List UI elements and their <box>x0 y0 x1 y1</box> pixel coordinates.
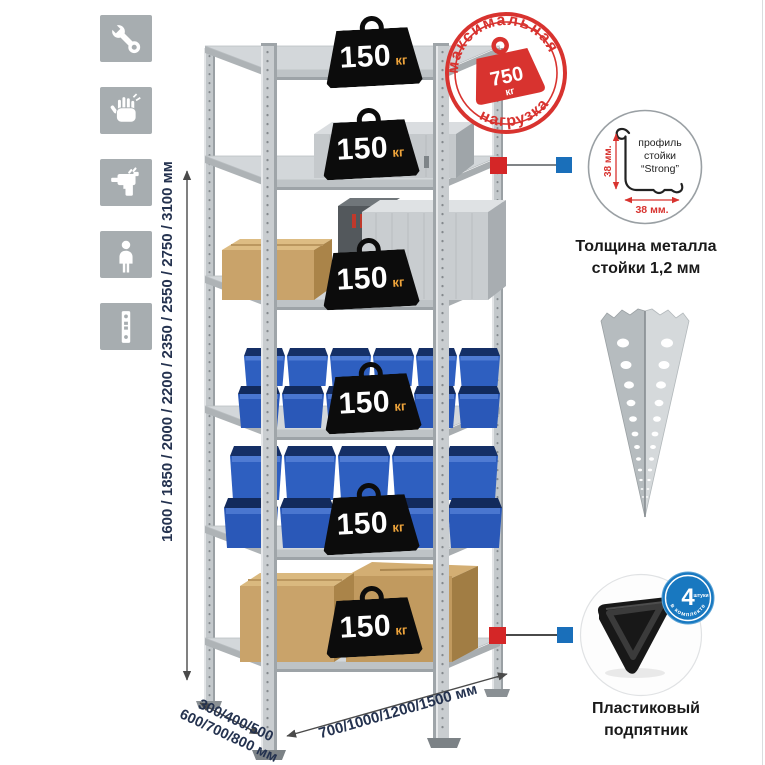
shelf2-load-badge: 150кг <box>320 106 420 181</box>
product-infographic: 150кг 150кг 150кг 150кг 150кг 150кг макс… <box>0 0 765 765</box>
load-unit: кг <box>395 622 408 638</box>
height-dimension-label: 1600 / 1850 / 2000 / 2200 / 2350 / 2550 … <box>159 202 181 542</box>
gloves-icon <box>100 87 152 134</box>
rack-post-icon <box>100 303 152 350</box>
foot-caption-line1: Пластиковый <box>556 698 736 720</box>
wrench-icon <box>100 15 152 62</box>
load-value: 150 <box>336 263 389 296</box>
profile-label-1: профиль <box>638 137 682 149</box>
callout-blue-square-top <box>556 157 572 173</box>
callout-line-top <box>507 164 556 166</box>
load-value: 150 <box>336 508 389 541</box>
post-profile-detail: 38 мм. 38 мм. профиль стойки “Strong” <box>587 109 703 225</box>
load-unit: кг <box>395 52 408 68</box>
profile-label-2: стойки <box>644 150 676 162</box>
shelf3-load-badge: 150кг <box>320 236 420 311</box>
gloves-glyph <box>108 93 144 129</box>
page-edge-line <box>762 0 763 765</box>
profile-dim-vertical: 38 мм. <box>603 145 614 177</box>
callout-red-square-bottom <box>489 627 506 644</box>
shelf5-load-badge: 150кг <box>320 481 420 556</box>
shelf1-load-badge: 150кг <box>323 14 423 89</box>
load-value: 150 <box>339 611 392 644</box>
included-count-badge: 4 штуки в комплекте <box>661 571 715 625</box>
load-unit: кг <box>394 398 407 414</box>
person-glyph <box>108 237 144 273</box>
person-icon <box>100 231 152 278</box>
profile-caption-line1: Толщина металла <box>551 236 741 258</box>
load-unit: кг <box>392 144 405 160</box>
foot-caption-line2: подпятник <box>556 720 736 742</box>
stamp-weight-icon: 750 кг <box>464 32 545 106</box>
load-value: 150 <box>339 41 392 74</box>
load-value: 150 <box>336 133 389 166</box>
callout-blue-square-bottom <box>557 627 573 643</box>
profile-dim-horizontal: 38 мм. <box>635 204 668 216</box>
rack-post-glyph <box>108 309 144 345</box>
shelf6-load-badge: 150кг <box>323 584 423 659</box>
max-load-stamp: максимальная нагрузка 750 кг <box>430 0 582 149</box>
load-unit: кг <box>392 519 405 535</box>
foot-caption: Пластиковый подпятник <box>556 698 736 741</box>
corner-post-photo <box>597 303 693 528</box>
shelf4-load-badge: 150кг <box>322 360 422 435</box>
callout-red-square-top <box>490 157 507 174</box>
load-unit: кг <box>392 274 405 290</box>
stamp-unit: кг <box>504 86 515 99</box>
callout-line-bottom <box>505 634 557 636</box>
badge-count-label: штуки <box>693 593 708 599</box>
profile-caption-line2: стойки 1,2 мм <box>551 258 741 280</box>
wrench-glyph <box>108 21 144 57</box>
profile-caption: Толщина металла стойки 1,2 мм <box>551 236 741 279</box>
drill-glyph <box>108 165 144 201</box>
drill-icon <box>100 159 152 206</box>
load-value: 150 <box>338 387 391 420</box>
profile-label-3: “Strong” <box>641 163 679 175</box>
